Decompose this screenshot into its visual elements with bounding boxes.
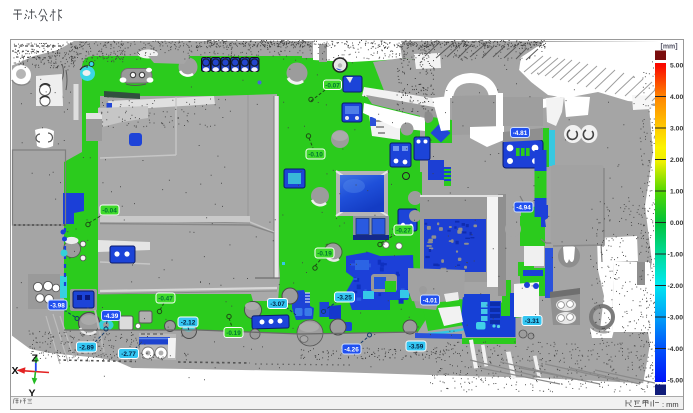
svg-text:-0.19: -0.19: [226, 330, 241, 337]
svg-text:-5.00: -5.00: [668, 378, 684, 385]
svg-text:4.00: 4.00: [670, 94, 683, 101]
svg-text:-0.07: -0.07: [325, 82, 340, 89]
svg-text:-2.00: -2.00: [668, 283, 684, 290]
svg-text:[mm]: [mm]: [661, 44, 678, 51]
svg-text:-0.47: -0.47: [158, 296, 173, 303]
svg-text:-0.27: -0.27: [396, 228, 411, 235]
svg-text:-3.00: -3.00: [668, 315, 684, 322]
svg-text:-4.81: -4.81: [513, 130, 528, 137]
svg-text:5.00: 5.00: [670, 63, 683, 70]
svg-text:-1.00: -1.00: [668, 252, 684, 259]
svg-text:-4.01: -4.01: [423, 298, 438, 305]
svg-text:-4.94: -4.94: [516, 205, 531, 212]
svg-text:-2.77: -2.77: [121, 351, 136, 358]
svg-text:-4.00: -4.00: [668, 346, 684, 353]
svg-text:-2.12: -2.12: [181, 320, 196, 327]
svg-text:-0.19: -0.19: [317, 251, 332, 258]
svg-text:-3.59: -3.59: [409, 344, 424, 351]
svg-text:-0.04: -0.04: [102, 208, 117, 215]
svg-text:1.00: 1.00: [670, 189, 683, 196]
svg-text:3.00: 3.00: [670, 126, 683, 133]
svg-text:X: X: [12, 365, 19, 377]
svg-text:-3.07: -3.07: [270, 301, 285, 308]
svg-text:0.00: 0.00: [670, 220, 683, 227]
svg-text:: mm: : mm: [662, 400, 679, 409]
svg-text:-4.26: -4.26: [344, 347, 359, 354]
svg-text:-2.89: -2.89: [79, 345, 94, 352]
svg-text:-3.25: -3.25: [337, 295, 352, 302]
svg-text:-4.39: -4.39: [104, 313, 119, 320]
svg-text:-3.98: -3.98: [50, 303, 65, 310]
svg-text:2.00: 2.00: [670, 157, 683, 164]
svg-text:-0.10: -0.10: [308, 152, 323, 159]
svg-text:Z: Z: [32, 353, 39, 365]
svg-text:-3.31: -3.31: [525, 318, 540, 325]
